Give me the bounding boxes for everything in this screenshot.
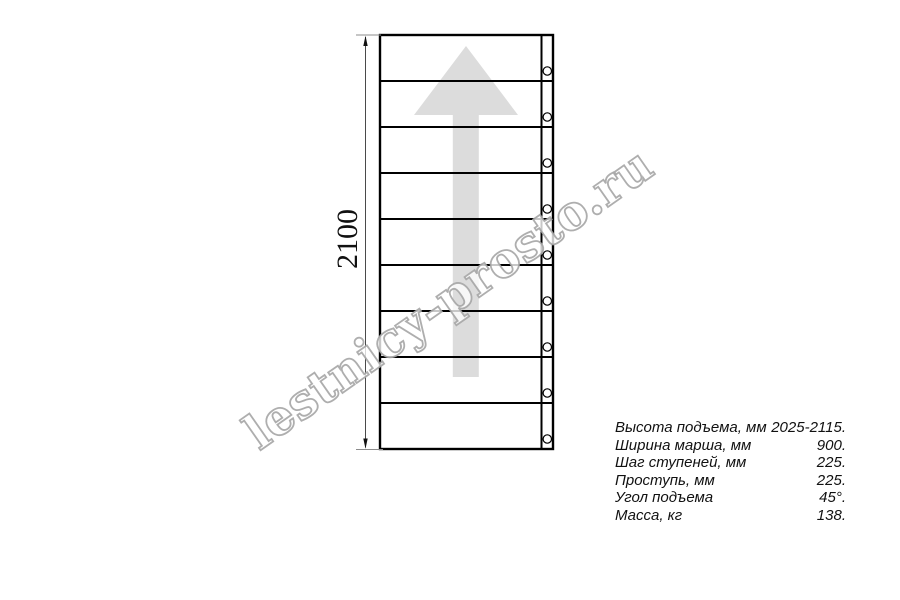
staircase-drawing-page: 2100 lestnicy-prosto.ru Высота подъема, …: [0, 0, 900, 600]
spec-value: 138.: [817, 507, 846, 525]
spec-row-height: Высота подъема, мм 2025-2115.: [615, 419, 846, 437]
spec-value: 225.: [817, 454, 846, 472]
spec-value: 45°.: [819, 489, 846, 507]
fastener-circle: [543, 389, 551, 397]
spec-label: Ширина марша, мм: [615, 437, 751, 455]
spec-label: Шаг ступеней, мм: [615, 454, 746, 472]
fastener-circle: [543, 435, 551, 443]
spec-row-mass: Масса, кг 138.: [615, 507, 846, 525]
specs-table: Высота подъема, мм 2025-2115. Ширина мар…: [615, 419, 846, 524]
spec-row-width: Ширина марша, мм 900.: [615, 437, 846, 455]
spec-value: 225.: [817, 472, 846, 490]
spec-value: 2025-2115.: [771, 419, 846, 437]
fastener-circle: [543, 343, 551, 351]
fastener-circle: [543, 297, 551, 305]
spec-label: Проступь, мм: [615, 472, 715, 490]
fastener-circle: [543, 113, 551, 121]
spec-row-angle: Угол подъема 45°.: [615, 489, 846, 507]
dimension-arrowhead-top: [363, 36, 367, 46]
spec-value: 900.: [817, 437, 846, 455]
spec-row-step: Шаг ступеней, мм 225.: [615, 454, 846, 472]
dimension-label: 2100: [331, 209, 364, 269]
spec-label: Высота подъема, мм: [615, 419, 767, 437]
spec-row-tread: Проступь, мм 225.: [615, 472, 846, 490]
dimension-arrowhead-bottom: [363, 439, 367, 449]
spec-label: Масса, кг: [615, 507, 682, 525]
fastener-circle: [543, 67, 551, 75]
spec-label: Угол подъема: [615, 489, 713, 507]
fastener-circle: [543, 159, 551, 167]
